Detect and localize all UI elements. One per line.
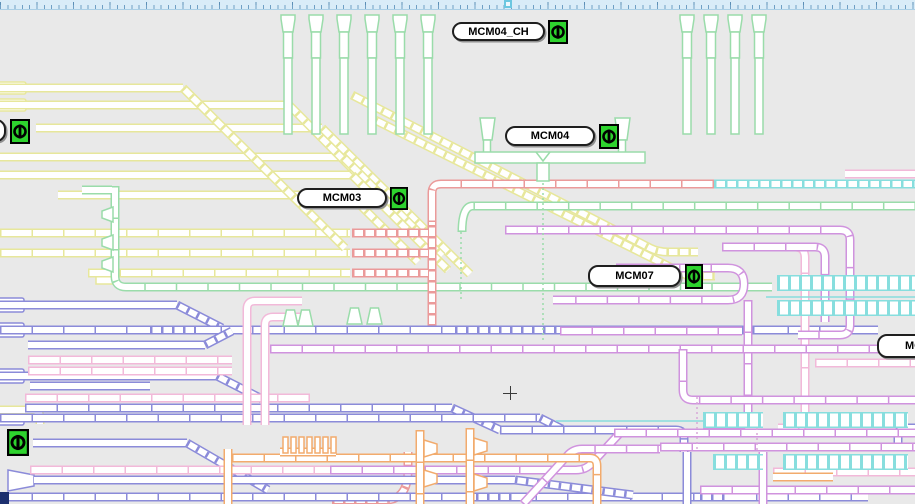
scada-canvas: MCM04_CH MCM04 MCM03 MCM07 MC [0, 0, 915, 504]
track-network [0, 0, 915, 504]
flow-direction-indicator-icon[interactable] [7, 429, 29, 456]
top-ruler[interactable] [0, 0, 915, 10]
ruler-marker[interactable] [504, 0, 512, 8]
flow-direction-indicator-icon[interactable] [390, 187, 408, 210]
station-button-right-partial[interactable]: MC [877, 334, 915, 358]
flow-direction-indicator-icon[interactable] [685, 264, 703, 289]
pink-tracks [25, 174, 915, 472]
orange-comb [283, 437, 336, 453]
navy-endpoint [0, 492, 9, 504]
station-button-mcm07[interactable]: MCM07 [588, 265, 681, 287]
flow-direction-indicator-icon[interactable] [548, 20, 568, 44]
flow-direction-indicator-icon[interactable] [10, 119, 30, 144]
station-button-mcm04[interactable]: MCM04 [505, 126, 595, 146]
flow-direction-indicator-icon[interactable] [599, 124, 619, 149]
station-button-mcm03[interactable]: MCM03 [297, 188, 387, 208]
station-button-mcm04-ch[interactable]: MCM04_CH [452, 22, 545, 41]
